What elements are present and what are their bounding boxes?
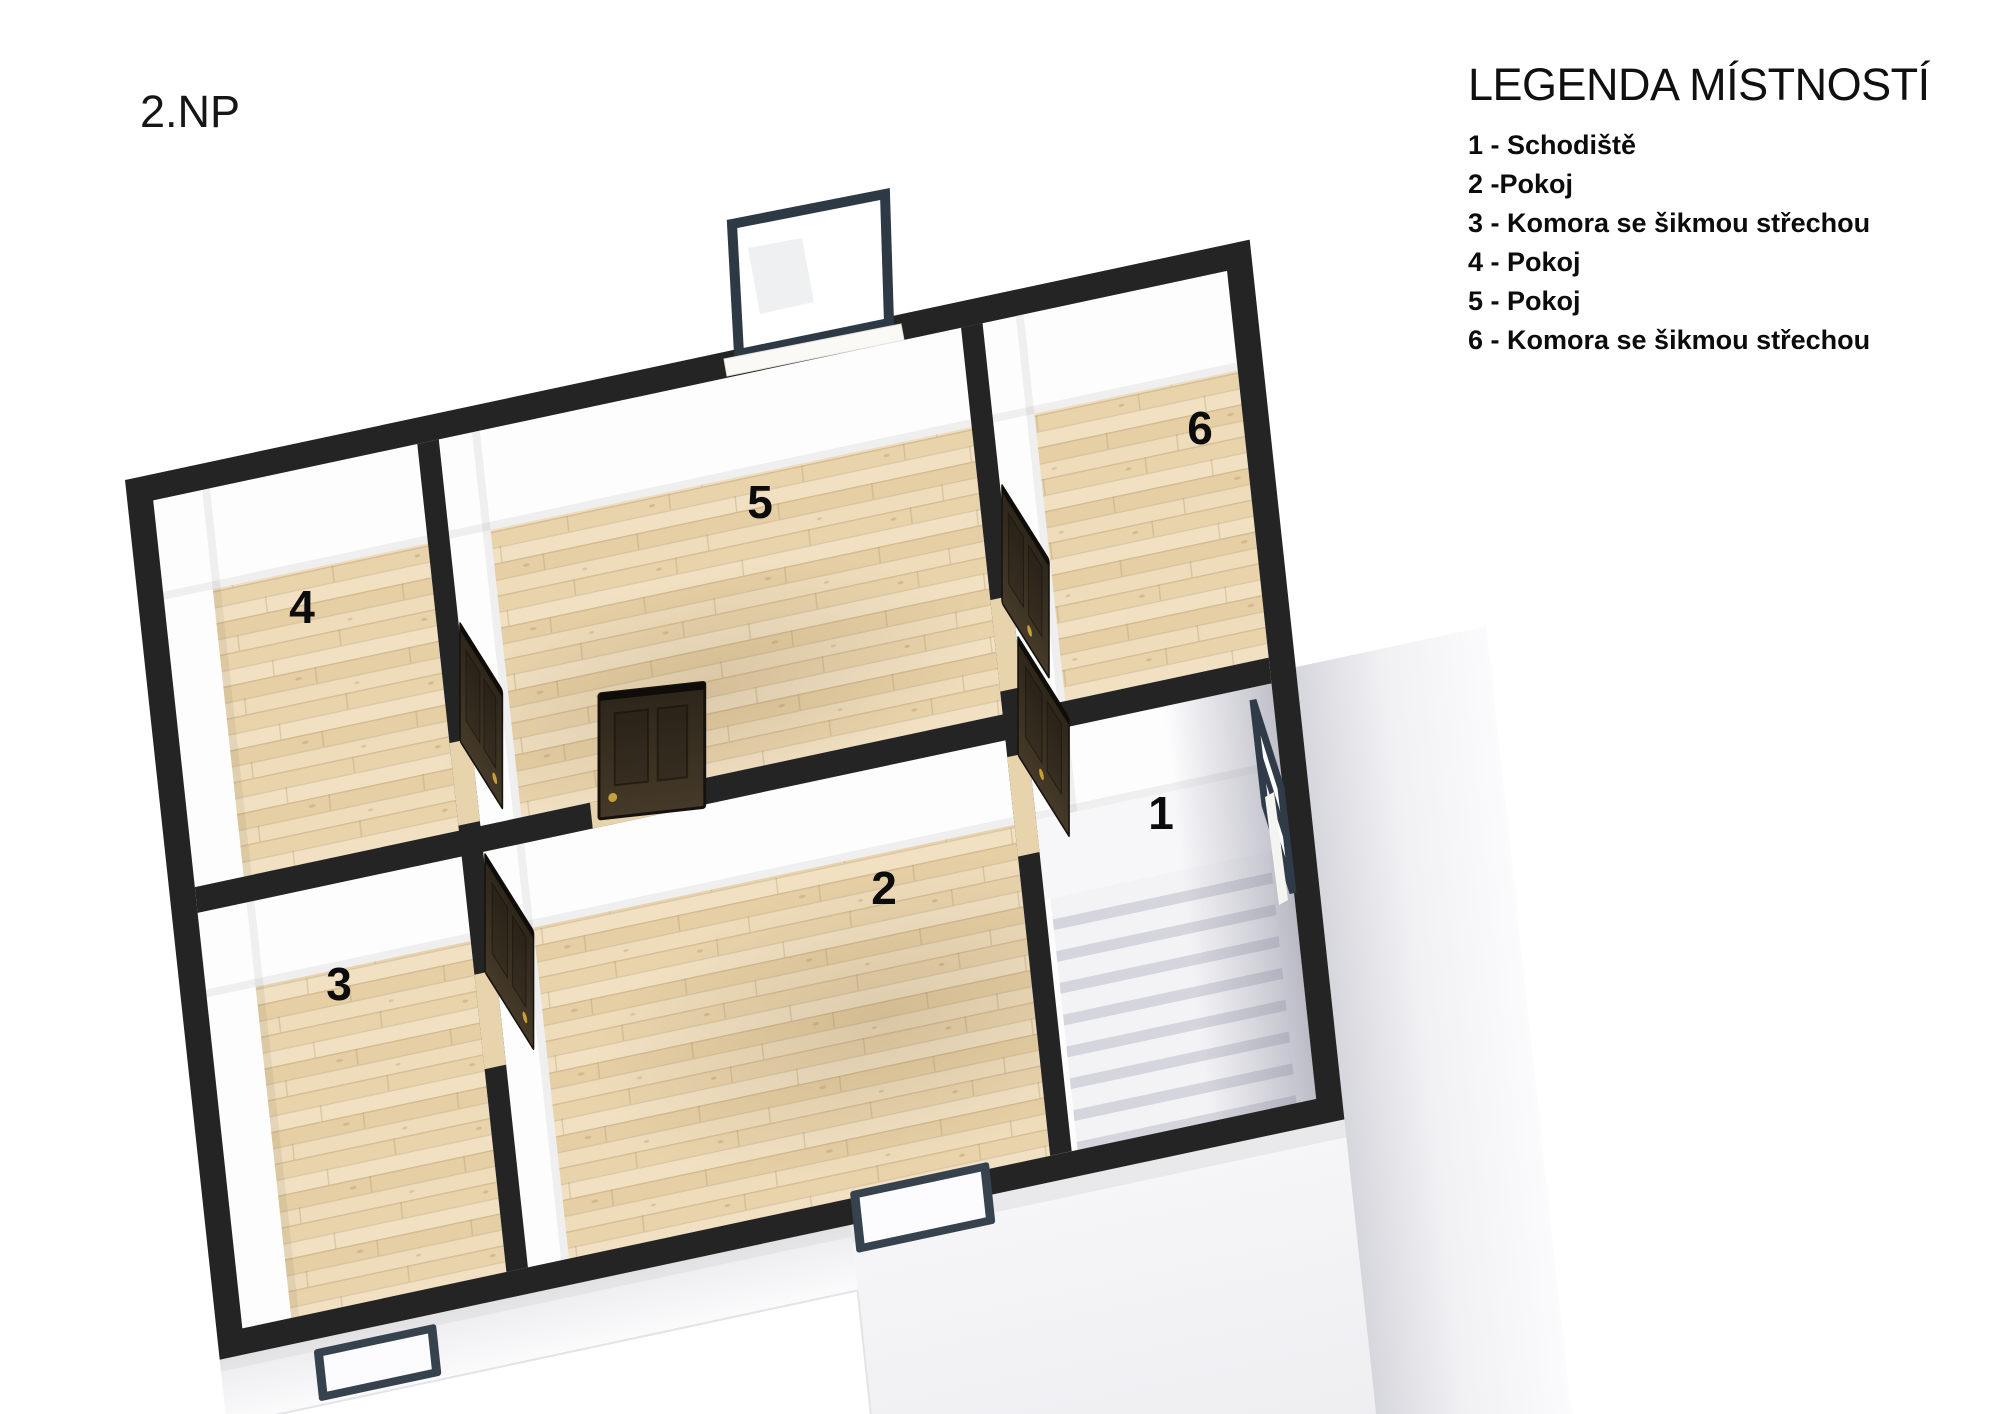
door-room5-room2 xyxy=(599,682,705,819)
room-label-6: 6 xyxy=(1187,402,1213,454)
room-label-1: 1 xyxy=(1148,787,1174,839)
legend-item-4: 4 - Pokoj xyxy=(1468,243,1968,282)
floor-label: 2.NP xyxy=(140,86,240,138)
floor-plan xyxy=(125,199,1591,1414)
legend: LEGENDA MÍSTNOSTÍ 1 - Schodiště 2 -Pokoj… xyxy=(1468,60,1968,360)
legend-items: 1 - Schodiště 2 -Pokoj 3 - Komora se šik… xyxy=(1468,126,1968,360)
legend-item-2: 2 -Pokoj xyxy=(1468,165,1968,204)
page: 1 2 3 4 5 6 2.NP LEGENDA MÍSTNOSTÍ 1 - S… xyxy=(0,0,2000,1414)
room-label-4: 4 xyxy=(289,581,315,633)
room-label-5: 5 xyxy=(747,476,773,528)
legend-item-1: 1 - Schodiště xyxy=(1468,126,1968,165)
legend-item-6: 6 - Komora se šikmou střechou xyxy=(1468,321,1968,360)
legend-item-5: 5 - Pokoj xyxy=(1468,282,1968,321)
room-label-2: 2 xyxy=(871,862,897,914)
room-label-3: 3 xyxy=(326,958,352,1010)
legend-title: LEGENDA MÍSTNOSTÍ xyxy=(1468,60,1968,110)
legend-item-3: 3 - Komora se šikmou střechou xyxy=(1468,204,1968,243)
